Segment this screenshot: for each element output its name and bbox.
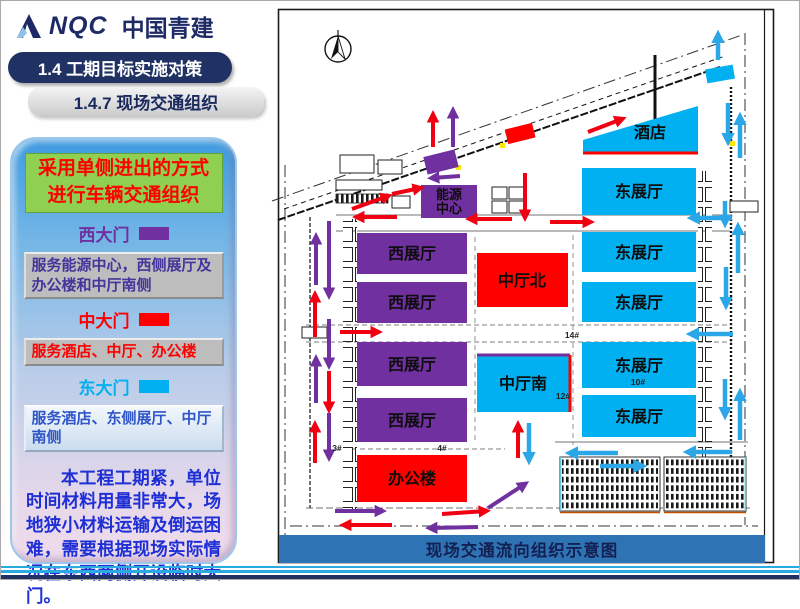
label-east-hall-2: 东展厅 — [615, 243, 663, 262]
label-energy-center-2: 中心 — [436, 201, 462, 216]
label-hotel: 酒店 — [634, 123, 666, 142]
section-subtitle: 1.4.7 现场交通组织 — [28, 87, 264, 116]
label-east-hall-5: 东展厅 — [615, 407, 663, 426]
section-title: 1.4 工期目标实施对策 — [8, 52, 232, 83]
plot-label-3: 3# — [332, 443, 342, 453]
gate-row-east: 东大门 — [12, 374, 235, 399]
footer-divider-line-2 — [0, 570, 800, 573]
gate-row-middle: 中大门 — [12, 307, 235, 332]
gate-middle-label: 中大门 — [79, 307, 130, 332]
plot-label-10: 10# — [631, 377, 645, 387]
sidebar-panel: 采用单侧进出的方式 进行车辆交通组织 西大门 服务能源中心，西侧展厅及办公楼和中… — [10, 137, 237, 564]
label-center-hall-north: 中厅北 — [498, 271, 546, 290]
gate-middle-description: 服务酒店、中厅、办公楼 — [24, 338, 224, 366]
section-title-text: 1.4 工期目标实施对策 — [38, 55, 202, 80]
label-energy-center-1: 能源 — [436, 187, 462, 202]
gate-row-west: 西大门 — [12, 221, 235, 246]
plot-label-14: 14# — [565, 330, 579, 340]
strategy-line2: 进行车辆交通组织 — [47, 183, 199, 210]
label-east-hall-3: 东展厅 — [615, 293, 663, 312]
map-caption-text: 现场交通流向组织示意图 — [426, 537, 619, 561]
footer-navy-band — [0, 575, 800, 580]
plot-label-12: 12# — [556, 391, 570, 401]
cnqc-logo-icon — [14, 11, 44, 41]
label-west-hall-2: 西展厅 — [388, 294, 436, 312]
logo-brand-text: NQC — [49, 12, 108, 41]
gate-west-label: 西大门 — [79, 221, 130, 246]
label-office: 办公楼 — [388, 469, 436, 488]
gate-east-description: 服务酒店、东侧展厅、中厅南侧 — [24, 405, 224, 452]
gate-east-color-swatch — [139, 380, 169, 393]
plot-label-4: 4# — [437, 443, 447, 453]
label-west-hall-4: 西展厅 — [388, 412, 436, 430]
label-west-hall-1: 西展厅 — [388, 245, 436, 263]
label-center-hall-south: 中厅南 — [499, 374, 547, 393]
parking-area — [560, 457, 746, 513]
site-plan-map: 能源 中心 酒店 东展厅 东展厅 东展厅 东展厅 东展厅 西展厅 西展厅 西展厅… — [270, 5, 797, 567]
schedule-note-paragraph: 本工程工期紧，单位时间材料用量非常大，场地狭小材料运输及倒运困难，需要根据现场实… — [26, 467, 221, 609]
company-logo: NQC 中国青建 — [14, 7, 214, 45]
logo-brand-cn-text: 中国青建 — [122, 9, 214, 43]
strategy-highlight-box: 采用单侧进出的方式 进行车辆交通组织 — [25, 153, 223, 213]
label-east-hall-4: 东展厅 — [615, 356, 663, 375]
gate-middle-color-swatch — [139, 313, 169, 326]
map-caption-bar: 现场交通流向组织示意图 — [279, 535, 765, 563]
site-plan-drawing: 能源 中心 酒店 东展厅 东展厅 东展厅 东展厅 东展厅 西展厅 西展厅 西展厅… — [270, 5, 797, 567]
gate-west-description: 服务能源中心，西侧展厅及办公楼和中厅南侧 — [24, 252, 224, 299]
gate-east-label: 东大门 — [79, 374, 130, 399]
gate-west-color-swatch — [139, 227, 169, 240]
label-west-hall-3: 西展厅 — [388, 356, 436, 374]
label-east-hall-1: 东展厅 — [615, 182, 663, 201]
section-subtitle-text: 1.4.7 现场交通组织 — [74, 89, 219, 114]
footer-divider-line-1 — [0, 566, 800, 568]
strategy-line1: 采用单侧进出的方式 — [38, 156, 209, 183]
